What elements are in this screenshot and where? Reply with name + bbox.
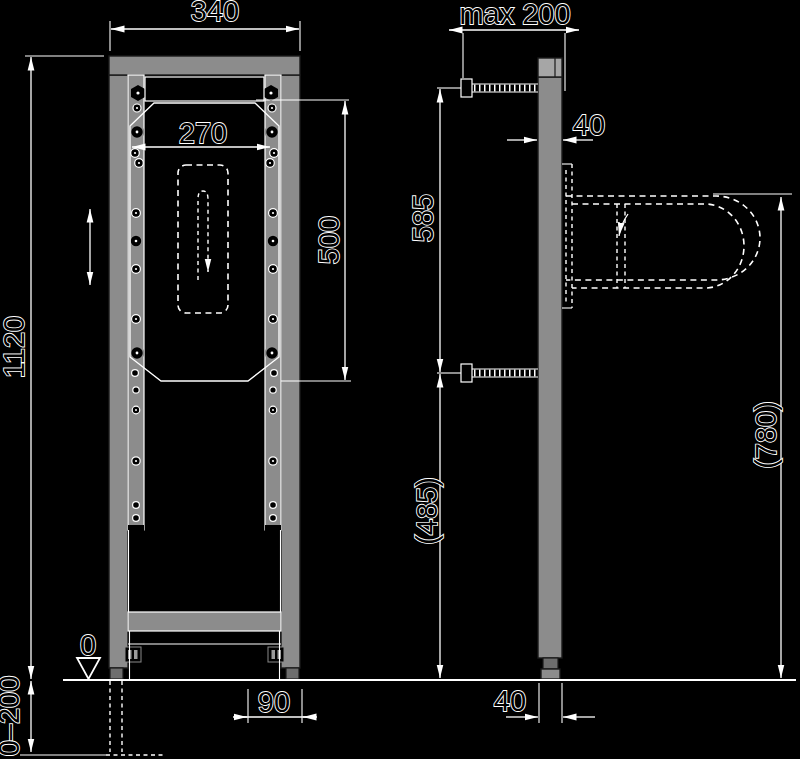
dim-profile-depth: 40 [573, 109, 605, 141]
side-foot [543, 658, 558, 669]
dim-inner-width: 270 [179, 117, 227, 149]
technical-drawing-canvas: 340 270 500 1120 0 0–200 90 [0, 0, 800, 759]
side-post-cap [538, 58, 562, 77]
dim-anchor-span: 500 [313, 216, 345, 264]
dim-frame-height: 1120 [0, 316, 30, 378]
right-post [281, 75, 300, 668]
left-post [109, 75, 128, 668]
dim-basin-rim-height: (780) [750, 401, 782, 469]
dim-base-depth: 40 [494, 685, 526, 717]
side-foot-pad [541, 669, 560, 679]
dim-max-wall-distance: max 200 [459, 0, 570, 30]
dim-floor-adjust-range: 0–200 [0, 676, 25, 757]
dim-frame-width: 340 [191, 0, 239, 27]
dim-lower-anchor-height: (485) [411, 477, 443, 545]
installation-frame-drawing: 340 270 500 1120 0 0–200 90 [0, 0, 800, 759]
dim-base-width: 90 [258, 686, 290, 718]
dim-anchor-spacing: 585 [407, 194, 439, 242]
dim-floor-datum: 0 [80, 629, 96, 661]
side-post [538, 77, 562, 658]
bottom-crossbar [128, 612, 281, 631]
top-opening [145, 77, 264, 101]
top-crossbar [109, 56, 300, 75]
